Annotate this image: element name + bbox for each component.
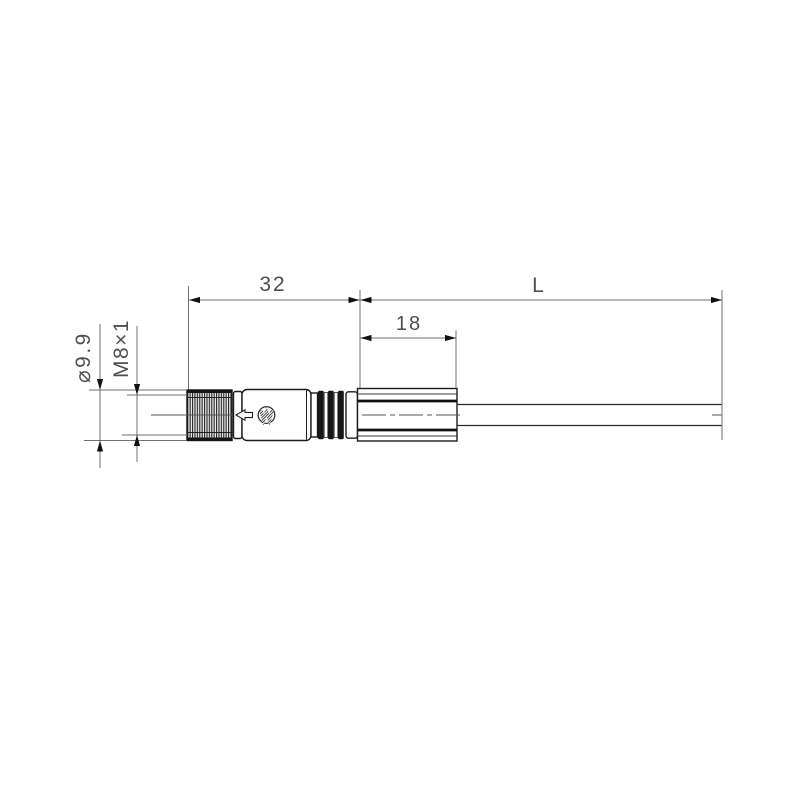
rib	[318, 391, 324, 440]
dimension-label-thread: M8×1	[110, 319, 133, 378]
dimension-label-L: L	[532, 274, 546, 297]
dimension-L: L	[361, 274, 723, 303]
arrow-left-icon	[189, 297, 200, 303]
knurl-top-edge	[187, 390, 232, 393]
connector-assembly	[151, 389, 722, 442]
arrow-left-icon	[361, 297, 372, 303]
arrow-down-icon	[97, 379, 103, 390]
connector-dimension-drawing: 32 L 18 ⌀9.	[0, 0, 800, 800]
collar-rear	[346, 392, 358, 438]
technical-drawing-page: 32 L 18 ⌀9.	[0, 0, 800, 800]
arrow-right-icon	[445, 335, 456, 341]
arrow-right-icon	[711, 297, 722, 303]
dimension-32: 32	[189, 273, 360, 303]
dimension-label-diameter: ⌀9.9	[72, 331, 95, 383]
arrow-up-icon	[97, 441, 103, 452]
arrow-left-icon	[361, 335, 372, 341]
strain-relief-ribs	[318, 391, 344, 440]
manufacturer-logo-icon	[258, 407, 275, 424]
dimension-18: 18	[361, 313, 457, 341]
dimension-label-18: 18	[396, 313, 422, 335]
arrow-right-icon	[349, 297, 360, 303]
rib-gap	[324, 393, 328, 438]
connector-body	[242, 390, 318, 441]
knurl-bottom-edge	[187, 438, 232, 441]
rib	[328, 391, 334, 440]
rib-gap	[334, 393, 338, 438]
rib	[338, 391, 344, 440]
body-neck	[311, 393, 318, 437]
dimension-label-32: 32	[259, 273, 286, 296]
cable	[457, 405, 722, 426]
